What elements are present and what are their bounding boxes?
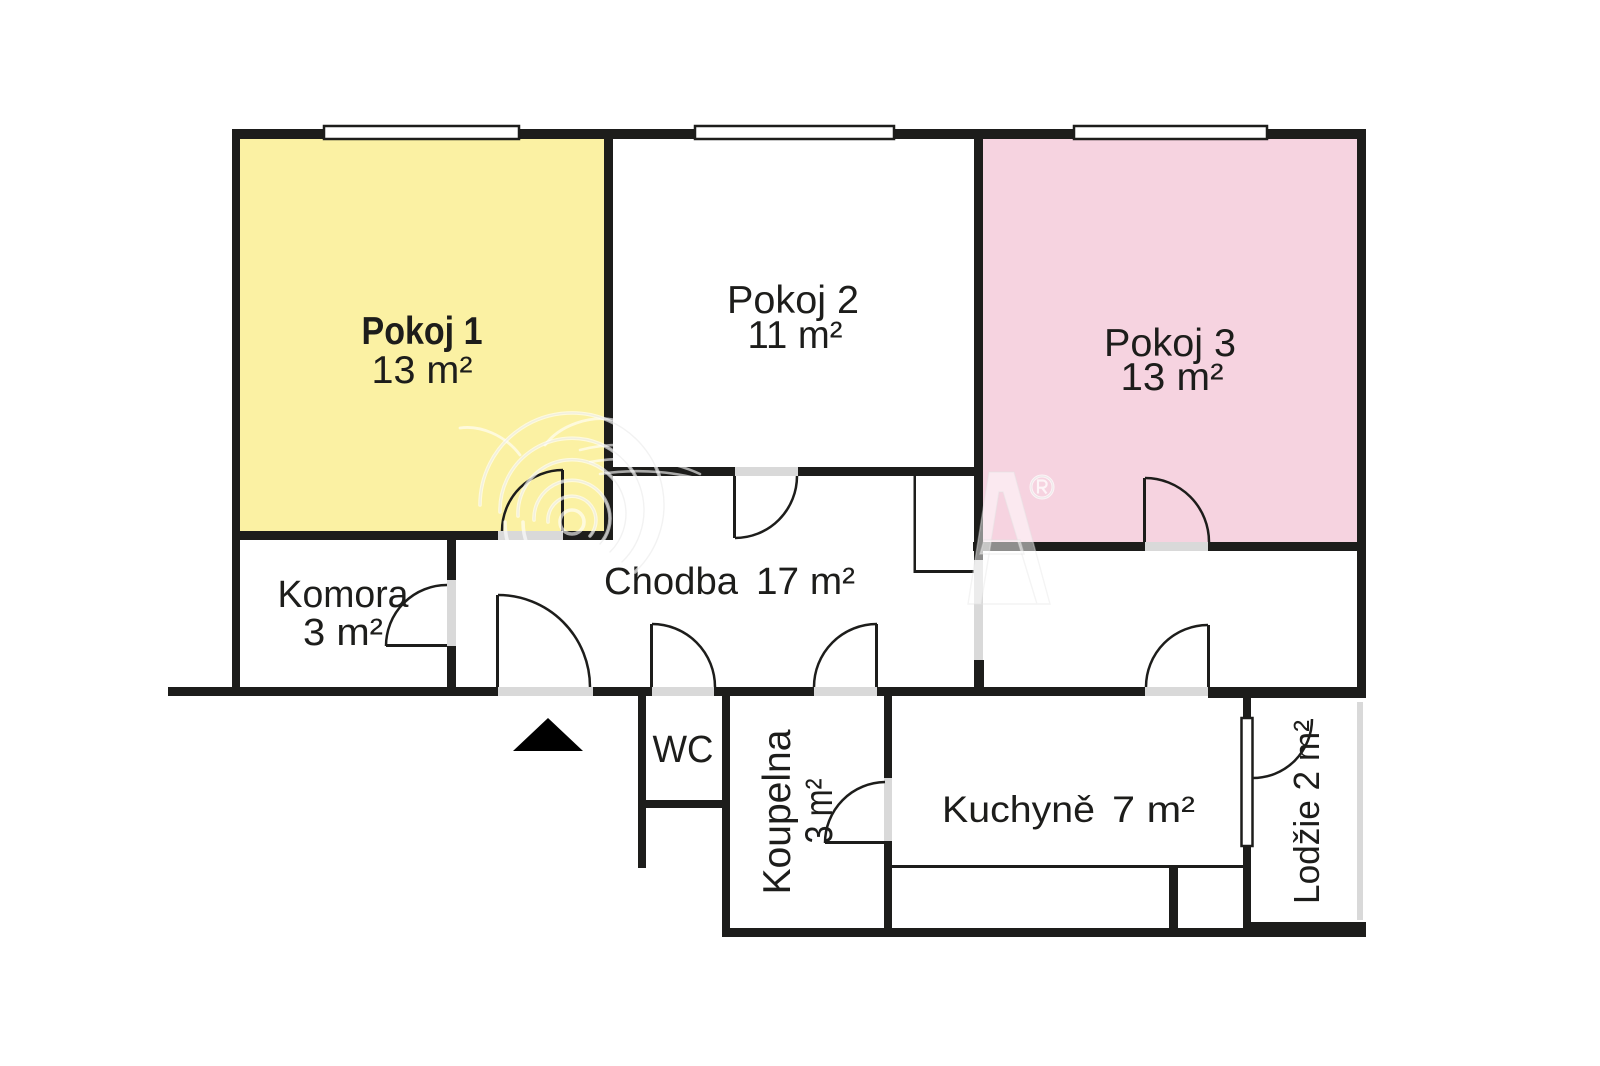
svg-text:17 m²: 17 m² [756, 561, 855, 603]
svg-text:13 m²: 13 m² [372, 349, 473, 392]
svg-text:Lodžie 2 m²: Lodžie 2 m² [1286, 720, 1327, 904]
svg-text:3 m²: 3 m² [798, 778, 841, 843]
svg-text:Koupelna: Koupelna [756, 729, 799, 895]
svg-text:13 m²: 13 m² [1121, 356, 1224, 399]
svg-text:Kuchyně: Kuchyně [942, 789, 1095, 830]
svg-text:Pokoj 1: Pokoj 1 [362, 310, 483, 353]
svg-text:Chodba: Chodba [604, 561, 739, 603]
svg-text:Komora: Komora [278, 574, 410, 616]
svg-text:WC: WC [653, 729, 714, 771]
svg-text:3 m²: 3 m² [303, 612, 383, 654]
svg-text:11 m²: 11 m² [748, 314, 843, 357]
svg-text:7 m²: 7 m² [1112, 789, 1195, 830]
